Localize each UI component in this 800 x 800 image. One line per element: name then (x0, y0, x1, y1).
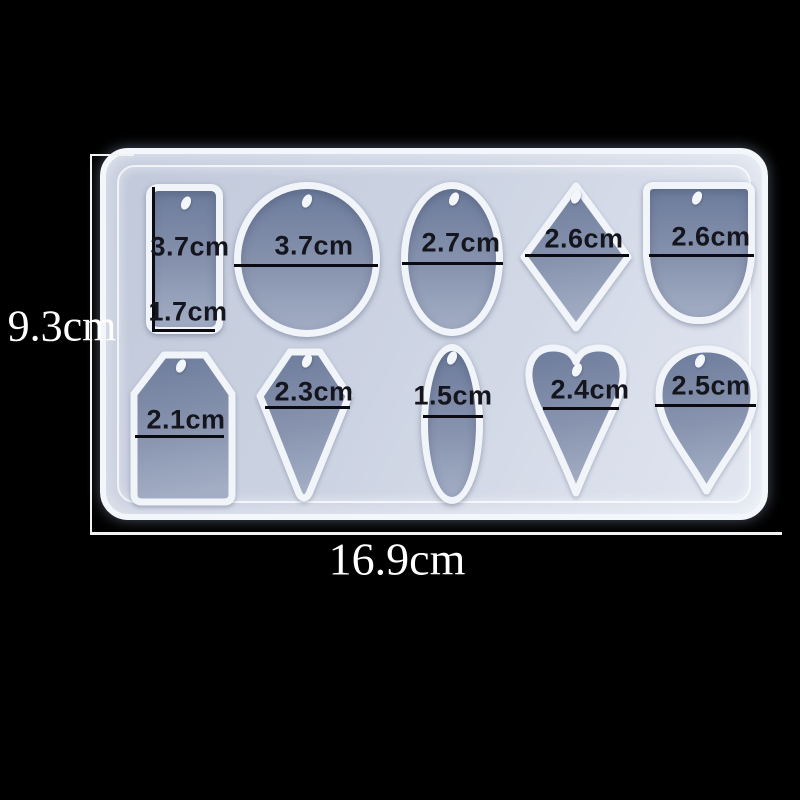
size-label-oval: 2.7cm (421, 228, 500, 259)
measure-line-heart (543, 407, 619, 410)
measure-line-slim-oval (423, 415, 483, 418)
measure-line-teardrop (655, 404, 756, 407)
cavity-kite (256, 348, 353, 503)
outer-width-label: 16.9cm (329, 533, 466, 586)
size-label-rectangle-width: 1.7cm (148, 297, 227, 328)
size-label-teardrop: 2.5cm (671, 371, 750, 402)
product-photo: 3.7cm 1.7cm 3.7cm 2.7cm 2.6cm 2.6cm 2.1c… (0, 0, 800, 800)
size-label-slim-oval: 1.5cm (413, 381, 492, 412)
cavity-rhombus (519, 181, 633, 333)
measure-line-arch (649, 254, 754, 257)
outer-height-label: 9.3cm (8, 301, 117, 352)
size-label-arch: 2.6cm (671, 222, 750, 253)
cavity-teardrop (654, 344, 759, 496)
size-label-circle: 3.7cm (274, 231, 353, 262)
outer-height-top-tick (90, 154, 134, 156)
size-label-kite: 2.3cm (274, 377, 353, 408)
measure-line-oval (402, 262, 503, 265)
size-label-heart: 2.4cm (550, 375, 629, 406)
silicone-mold: 3.7cm 1.7cm 3.7cm 2.7cm 2.6cm 2.6cm 2.1c… (100, 148, 768, 520)
measure-line-circle (234, 264, 378, 267)
size-label-rhombus: 2.6cm (544, 224, 623, 255)
cavity-arch (643, 182, 755, 324)
size-label-tag: 2.1cm (146, 405, 225, 436)
cavity-slim-oval (421, 344, 483, 504)
measure-line-rectangle-width (152, 329, 215, 332)
size-label-rectangle-height: 3.7cm (150, 232, 229, 263)
